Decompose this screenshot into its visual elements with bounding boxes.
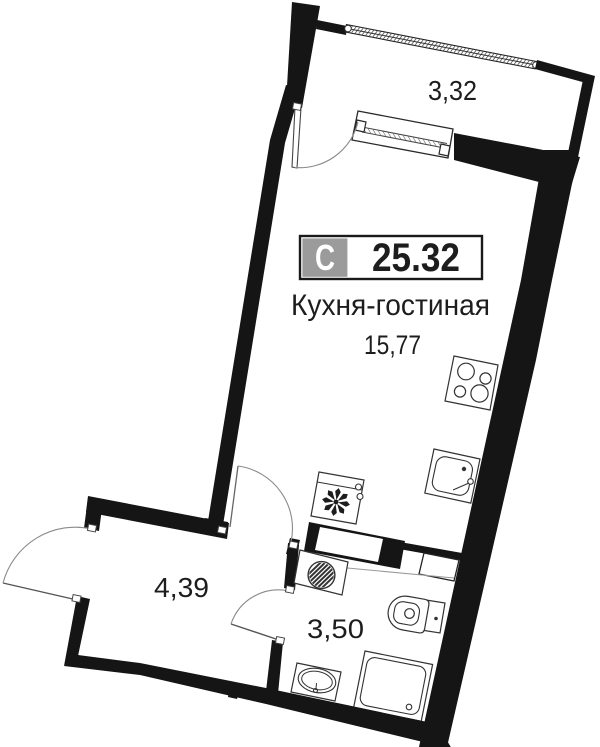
svg-text:4,39: 4,39 [154, 572, 209, 603]
svg-text:Кухня-гостиная: Кухня-гостиная [291, 289, 490, 322]
svg-text:15,77: 15,77 [364, 330, 421, 360]
svg-text:3,50: 3,50 [307, 614, 364, 644]
svg-text:25.32: 25.32 [372, 236, 460, 280]
svg-text:3,32: 3,32 [428, 75, 477, 106]
svg-text:С: С [315, 237, 335, 278]
